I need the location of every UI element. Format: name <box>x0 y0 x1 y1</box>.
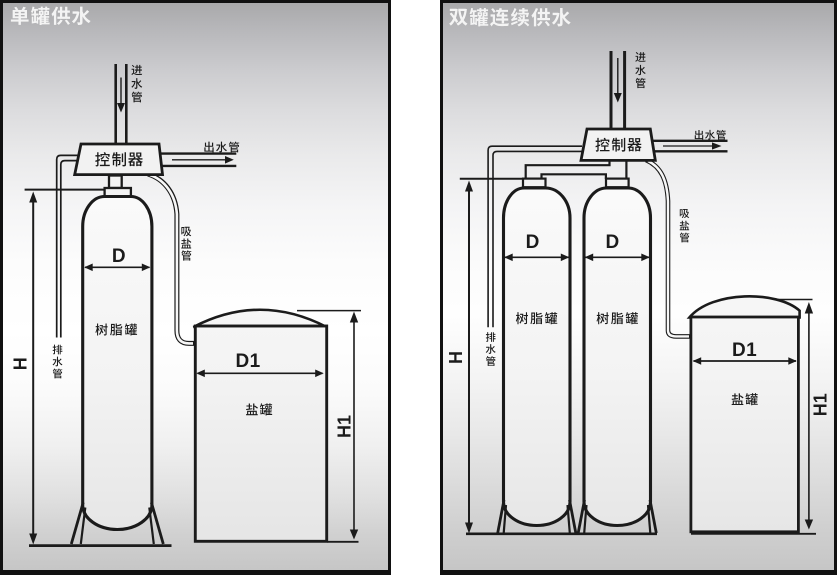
svg-text:D: D <box>112 246 126 267</box>
svg-text:D1: D1 <box>732 340 757 361</box>
svg-text:H: H <box>446 351 466 364</box>
svg-text:H: H <box>11 357 31 370</box>
svg-text:D: D <box>526 232 540 253</box>
svg-text:D1: D1 <box>235 351 260 372</box>
svg-text:H1: H1 <box>811 393 831 416</box>
svg-text:H1: H1 <box>335 415 355 438</box>
svg-text:D: D <box>606 232 620 253</box>
